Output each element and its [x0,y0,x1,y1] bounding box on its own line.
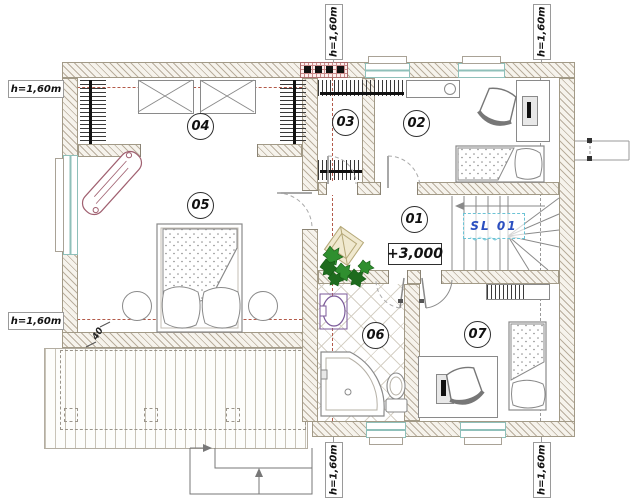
terrace-post [64,408,78,422]
door-gap-room05 [302,190,318,230]
room-label-05: 05 [187,192,214,219]
exterior-steps-leader [190,444,312,494]
monitor-screen-room02 [527,102,531,118]
window-room07 [460,422,506,438]
chimney-flue [326,66,333,73]
opening-room04 [140,144,258,157]
shelf-room07 [486,284,550,300]
kneewall-bar-room04-left [89,80,92,144]
terrace-post [226,408,240,422]
height-mark-bottom-right: h=1,60m [533,442,551,498]
window-bathroom-sill [369,437,403,445]
height-mark-bottom-left: h=1,60m [325,442,343,498]
room-label-07: 07 [464,321,491,348]
chimney-flue [337,66,344,73]
room-label-04: 04 [187,113,214,140]
door-gap-room07 [420,270,442,284]
door-gap-room02 [380,182,418,195]
room-label-01: 01 [401,206,428,233]
chair-room02 [477,85,520,128]
window-top-1 [365,63,410,78]
wardrobe-room04-2 [200,80,256,114]
desk-room07 [418,356,498,418]
window-room07-sill [464,437,502,445]
bench-room05 [78,147,145,218]
knob-room02-shelf [444,83,456,95]
chimney-flue [304,66,311,73]
room-label-03: 03 [332,109,359,136]
stair-label: SL 01 [463,213,525,239]
bathroom-tile-floor [318,284,404,421]
chimney-flue [315,66,322,73]
single-bed-room02 [456,146,544,182]
height-mark-left-top: h=1,60m [8,80,64,98]
window-left [63,155,78,255]
monitor-screen-room07 [441,380,446,396]
room-label-02: 02 [403,110,430,137]
height-line-center [332,78,333,421]
door-gap-room06 [388,270,408,284]
door-gap-room03 [326,182,358,195]
kneewall-hatch-room04-left [80,80,106,144]
kneewall-bar-room04-right [293,80,296,144]
terrace-post [144,408,158,422]
window-left-sill [55,158,64,252]
height-mark-top-left: h=1,60m [325,4,343,60]
kneewall-bar-room03-top [320,92,404,95]
window-top-2-sill [462,56,501,64]
height-mark-left-bottom: h=1,60m [8,312,64,330]
wardrobe-room04-1 [138,80,194,114]
wall-right [559,78,575,422]
room-label-06: 06 [362,322,389,349]
kneewall-bar-room03-bottom [320,170,362,173]
elevation-marker: +3,000 [388,243,442,265]
plant-stand [325,227,364,266]
wall-bottom-right [312,421,575,437]
height-mark-top-right: h=1,60m [533,4,551,60]
nightstand-right [248,291,278,321]
double-bed-room05 [157,224,242,332]
window-bathroom [366,422,406,438]
terrace-dashed-outline [60,350,306,430]
window-top-1-sill [368,56,407,64]
floor-plan: 01 02 03 04 05 06 07 +3,000 SL 01 40 h=1… [0,0,631,500]
right-canopy [575,138,629,161]
nightstand-left [122,291,152,321]
window-top-2 [458,63,505,78]
